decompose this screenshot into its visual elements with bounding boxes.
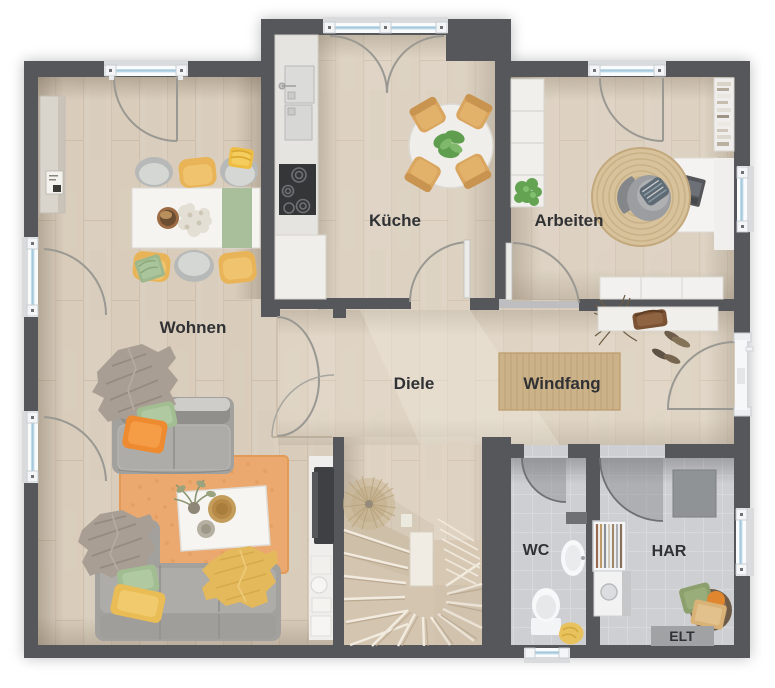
svg-text:Windfang: Windfang: [523, 374, 600, 393]
svg-text:WC: WC: [523, 542, 550, 559]
svg-text:Arbeiten: Arbeiten: [535, 211, 604, 230]
svg-text:ELT: ELT: [669, 628, 695, 644]
svg-text:Diele: Diele: [394, 374, 435, 393]
svg-text:Küche: Küche: [369, 211, 421, 230]
svg-text:Wohnen: Wohnen: [160, 318, 227, 337]
svg-text:HAR: HAR: [652, 543, 687, 560]
